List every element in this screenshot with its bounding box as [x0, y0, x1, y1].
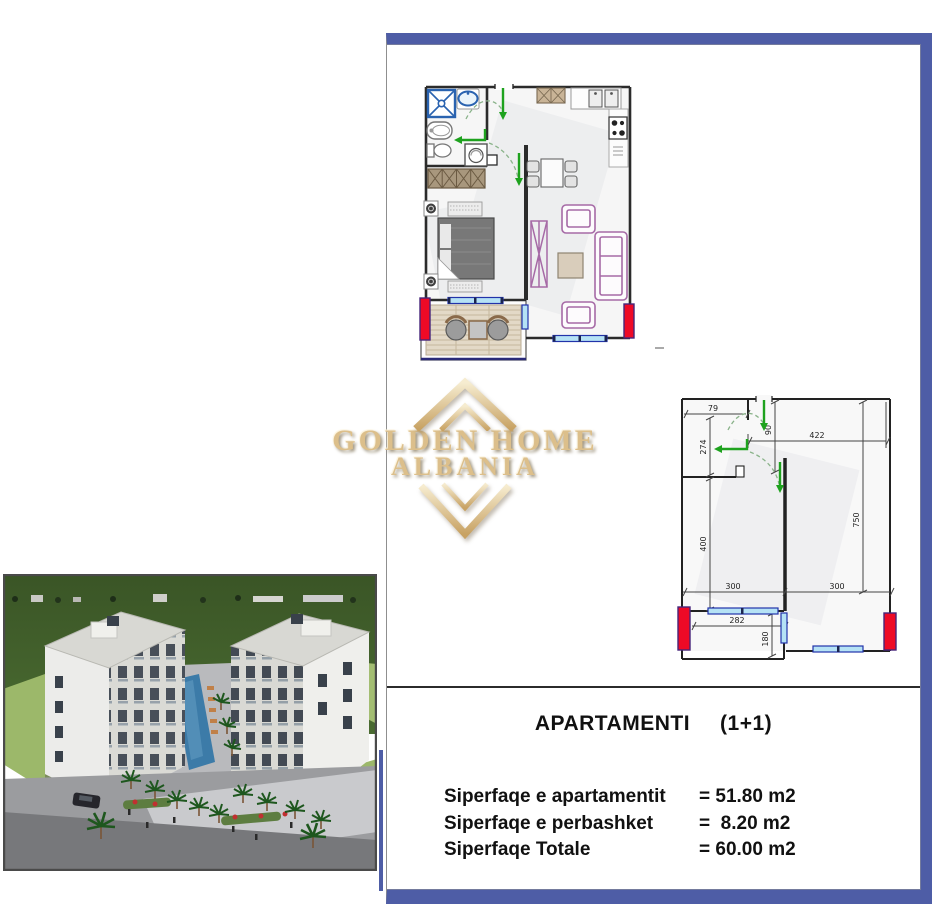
- dimension-label-79: 79: [708, 404, 718, 413]
- apartment-type: (1+1): [720, 712, 772, 736]
- dimension-label-300-left: 300: [725, 582, 740, 591]
- window: [553, 336, 607, 342]
- dimension-label-180: 180: [761, 631, 770, 646]
- coffee-table: [558, 253, 583, 278]
- furnished-floor-plan: [419, 83, 637, 367]
- apartment-title: APARTAMENTI: [535, 712, 690, 736]
- area-value: = 60.00 m2: [699, 839, 796, 861]
- area-label: Siperfaqe Totale: [444, 839, 699, 861]
- washing-machine-icon: [465, 144, 487, 166]
- area-row: Siperfaqe Totale = 60.00 m2: [444, 837, 864, 864]
- area-value: = 8.20 m2: [699, 813, 790, 835]
- area-row: Siperfaqe e perbashket = 8.20 m2: [444, 811, 864, 838]
- area-value: = 51.80 m2: [699, 786, 796, 808]
- toilet-icon: [427, 144, 451, 157]
- window: [448, 298, 503, 304]
- building-render-photo: [3, 574, 377, 871]
- dimension-label-274: 274: [699, 439, 708, 454]
- column: [884, 613, 896, 650]
- separator-line: [387, 686, 920, 688]
- armchair: [562, 302, 595, 328]
- area-summary: Siperfaqe e apartamentit = 51.80 m2 Sipe…: [444, 784, 864, 864]
- shower-icon: [428, 90, 455, 117]
- column: [678, 607, 690, 650]
- closet: [428, 169, 485, 188]
- bed: [438, 218, 494, 279]
- area-label: Siperfaqe e perbashket: [444, 813, 699, 835]
- dimension-label-282: 282: [729, 616, 744, 625]
- dimension-label-422: 422: [809, 431, 824, 440]
- pillow-strip: [448, 202, 482, 216]
- pillow-strip: [448, 281, 482, 292]
- nightstand: [424, 201, 438, 216]
- window: [781, 613, 787, 643]
- window: [522, 305, 528, 329]
- nightstand: [424, 274, 438, 289]
- panel-left-border-fragment: [379, 750, 383, 891]
- area-row: Siperfaqe e apartamentit = 51.80 m2: [444, 784, 864, 811]
- bathtub-icon: [427, 122, 452, 139]
- armchair: [562, 205, 595, 233]
- stray-mark: [655, 347, 664, 349]
- area-label: Siperfaqe e apartamentit: [444, 786, 699, 808]
- stove-icon: [609, 117, 627, 139]
- apartment-title-row: APARTAMENTI (1+1): [387, 712, 920, 736]
- dimensioned-floor-plan: 79 274 90 422 400 750 300 300 282 180: [672, 392, 908, 674]
- dimension-label-750: 750: [852, 512, 861, 527]
- column: [624, 304, 634, 338]
- dimension-label-400: 400: [699, 536, 708, 551]
- dimension-label-300-right: 300: [829, 582, 844, 591]
- sofa: [595, 232, 627, 300]
- column: [420, 298, 430, 340]
